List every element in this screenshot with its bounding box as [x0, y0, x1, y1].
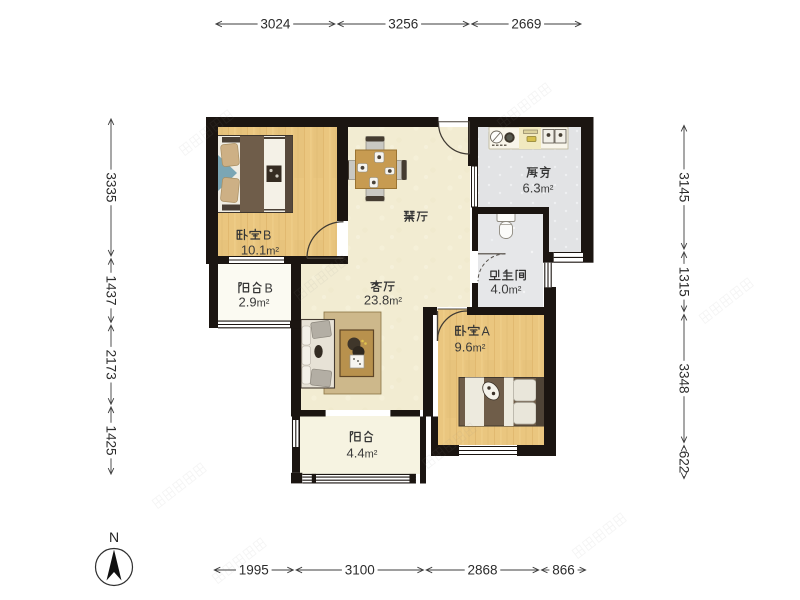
svg-text:10.1m²: 10.1m²	[241, 243, 279, 258]
svg-text:1425: 1425	[104, 426, 119, 456]
svg-text:3348: 3348	[677, 363, 692, 393]
svg-text:622: 622	[677, 451, 692, 474]
svg-text:3335: 3335	[104, 172, 119, 202]
svg-text:6.3m²: 6.3m²	[523, 181, 554, 196]
svg-text:866: 866	[552, 563, 575, 578]
svg-text:2173: 2173	[104, 350, 119, 380]
svg-text:B: B	[263, 229, 271, 243]
svg-text:1315: 1315	[677, 267, 692, 297]
svg-text:3100: 3100	[345, 563, 375, 578]
svg-text:3024: 3024	[260, 17, 291, 32]
svg-text:4.4m²: 4.4m²	[347, 446, 378, 461]
svg-text:3256: 3256	[388, 17, 418, 32]
svg-text:3145: 3145	[677, 172, 692, 202]
svg-text:4.0m²: 4.0m²	[491, 282, 522, 297]
svg-text:2.9m²: 2.9m²	[239, 295, 270, 310]
svg-text:1437: 1437	[104, 276, 119, 306]
svg-text:1995: 1995	[239, 563, 269, 578]
svg-text:23.8m²: 23.8m²	[364, 293, 402, 308]
svg-text:9.6m²: 9.6m²	[455, 340, 486, 355]
svg-text:N: N	[109, 529, 119, 545]
svg-text:A: A	[482, 325, 491, 339]
svg-text:B: B	[265, 282, 273, 296]
svg-text:2868: 2868	[467, 563, 497, 578]
svg-text:2669: 2669	[511, 17, 541, 32]
